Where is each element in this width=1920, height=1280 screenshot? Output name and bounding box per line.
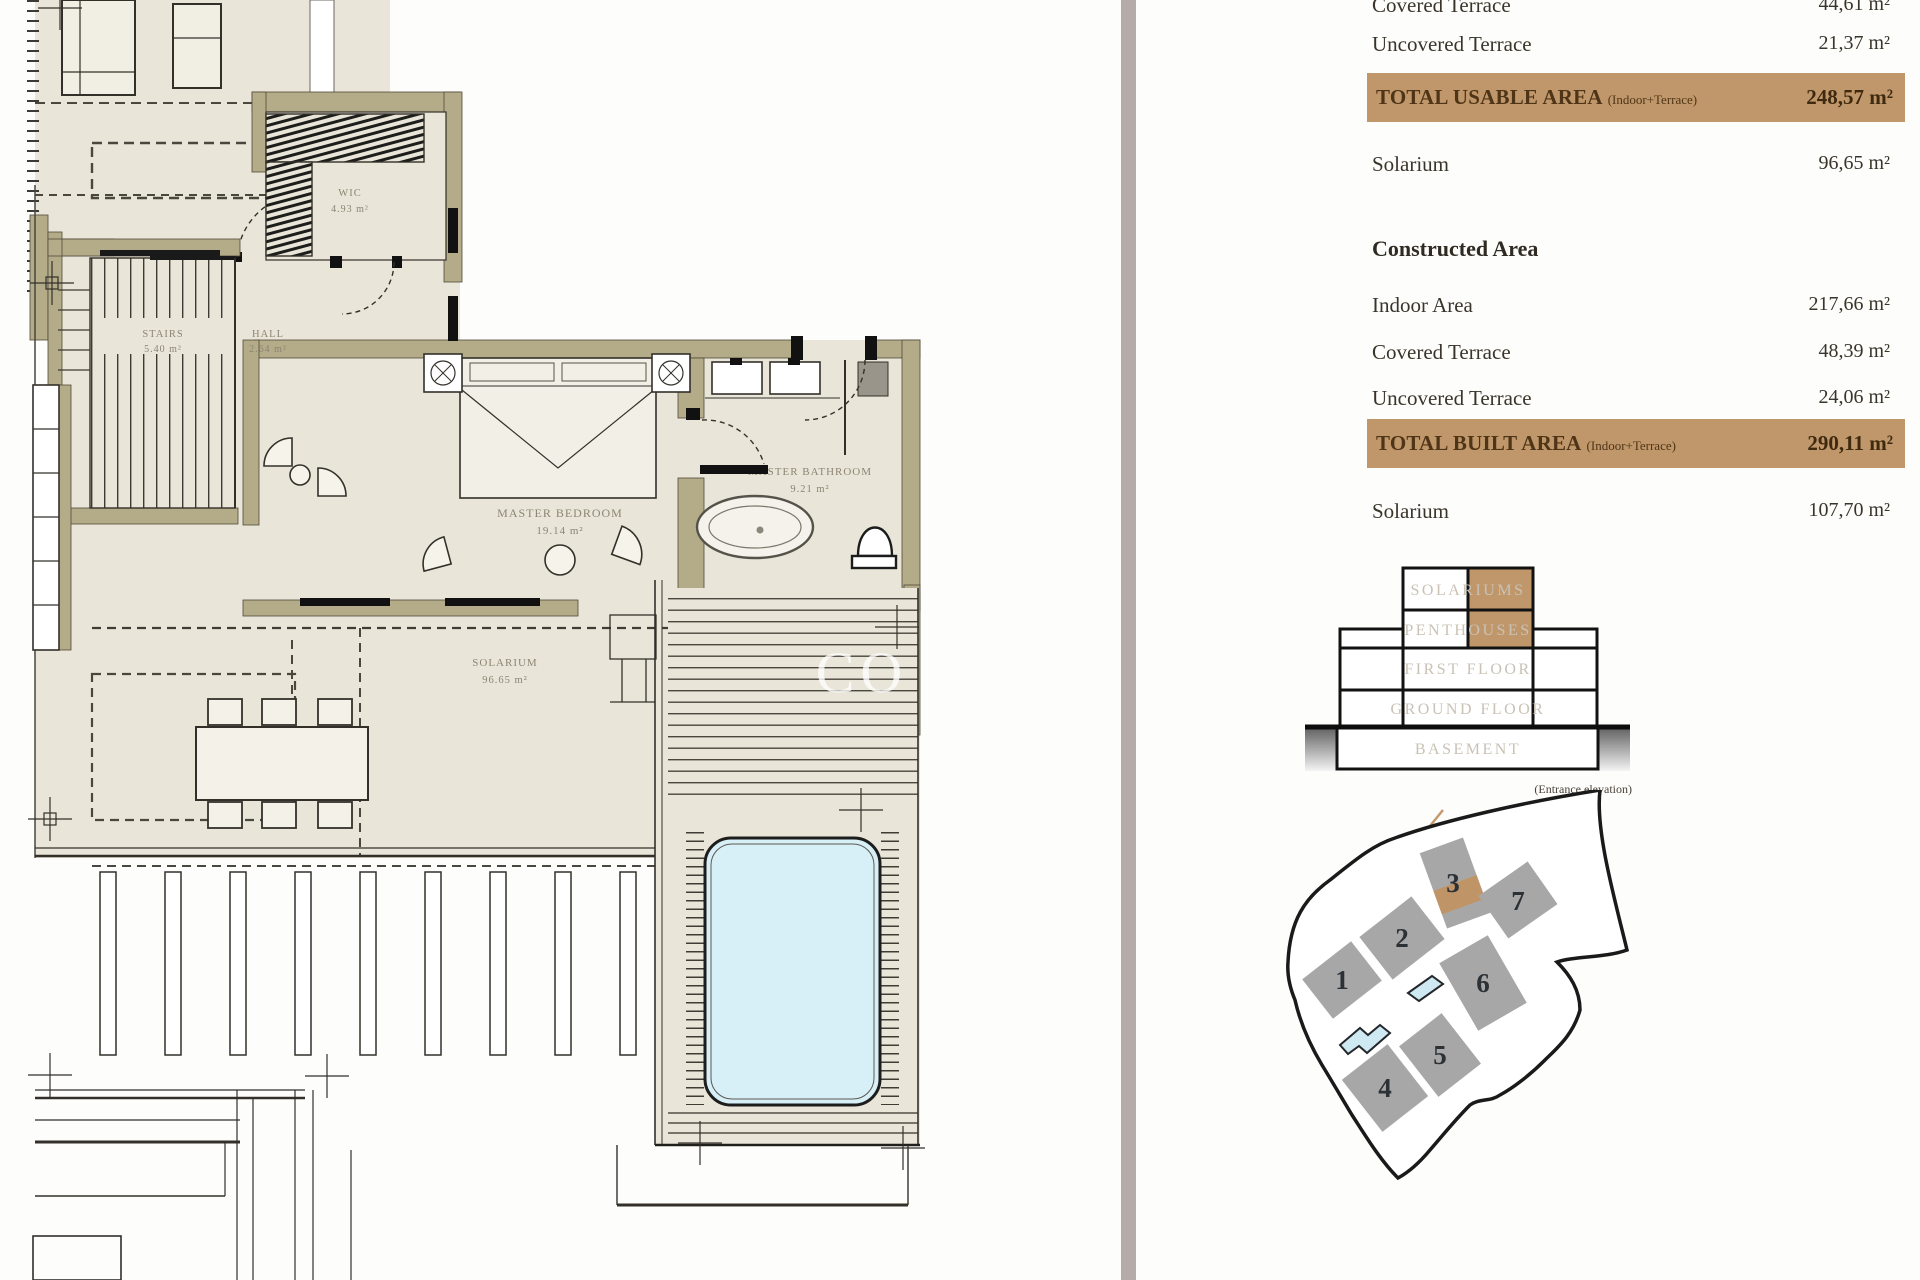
table-row: Solarium 107,70 m² — [1372, 499, 1890, 524]
pool-water — [705, 838, 880, 1105]
ground-left — [1305, 727, 1337, 771]
floor-label-penthouses: PENTHOUSES — [1404, 622, 1531, 639]
total-usable-area-bar: TOTAL USABLE AREA(Indoor+Terrace) 248,57… — [1367, 73, 1905, 122]
floor-label-ground-floor: GROUND FLOOR — [1391, 701, 1546, 718]
floor-label-solariums: SOLARIUMS — [1411, 582, 1526, 599]
constructed-area-heading: Constructed Area — [1372, 236, 1538, 262]
total-value: 290,11 m² — [1807, 431, 1893, 456]
planter-column — [33, 385, 59, 650]
bathtub — [697, 496, 813, 558]
site-building-1: 1 — [1335, 965, 1349, 995]
solarium-label: SOLARIUM — [472, 657, 537, 669]
total-built-area-bar: TOTAL BUILT AREA(Indoor+Terrace) 290,11 … — [1367, 419, 1905, 468]
stairs-area: 5.40 m² — [144, 344, 182, 355]
building-elevation-diagram: SOLARIUMS PENTHOUSES FIRST FLOOR GROUND … — [1300, 558, 1635, 798]
total-qualifier: (Indoor+Terrace) — [1608, 92, 1697, 107]
row-label: Solarium — [1372, 499, 1449, 524]
row-value: 48,39 m² — [1818, 340, 1890, 365]
bedroom-area: 19.14 m² — [536, 525, 583, 537]
vanity-sinks — [705, 358, 840, 398]
site-building-2: 2 — [1395, 923, 1409, 953]
table-row: Indoor Area 217,66 m² — [1372, 293, 1890, 318]
page-divider — [1121, 0, 1136, 1280]
site-building-7: 7 — [1511, 886, 1525, 916]
row-label: Covered Terrace — [1372, 340, 1511, 365]
area-summary-panel: Covered Terrace 44,61 m² Uncovered Terra… — [1145, 0, 1920, 1280]
floor-label-basement: BASEMENT — [1415, 741, 1521, 758]
bed — [460, 358, 656, 498]
hall-area: 2.64 m² — [249, 344, 287, 355]
nightstand-left — [424, 354, 462, 392]
wic-label: WIC — [338, 188, 361, 199]
row-value: 24,06 m² — [1818, 386, 1890, 411]
row-label: Indoor Area — [1372, 293, 1473, 318]
pergola-slats — [100, 872, 636, 1055]
nightstand-right — [652, 354, 690, 392]
ground-right — [1598, 727, 1630, 771]
total-value: 248,57 m² — [1806, 85, 1893, 110]
total-label: TOTAL USABLE AREA — [1376, 85, 1603, 109]
bathroom-area: 9.21 m² — [790, 484, 829, 495]
door-leaf — [700, 465, 768, 474]
table-row: Covered Terrace 48,39 m² — [1372, 340, 1890, 365]
site-map: 1 2 3 4 5 6 7 — [1285, 790, 1645, 1185]
site-building-5: 5 — [1433, 1040, 1447, 1070]
bedroom-label: MASTER BEDROOM — [497, 506, 623, 520]
floor-plan: STAIRS 5.40 m² HALL 2.64 m² WIC 4.93 m² — [0, 0, 1140, 1280]
floor-label-first-floor: FIRST FLOOR — [1404, 661, 1531, 678]
closet-hatch-left — [266, 162, 312, 256]
solarium-area: 96.65 m² — [482, 675, 528, 686]
table-row: Covered Terrace 44,61 m² — [1372, 0, 1890, 18]
row-value: 21,37 m² — [1818, 32, 1890, 57]
site-building-6: 6 — [1476, 968, 1490, 998]
floorplan-page: STAIRS 5.40 m² HALL 2.64 m² WIC 4.93 m² — [0, 0, 1920, 1280]
stairs-label: STAIRS — [142, 329, 183, 340]
row-value: 96,65 m² — [1818, 152, 1890, 177]
table-row: Uncovered Terrace 21,37 m² — [1372, 32, 1890, 57]
table-row: Uncovered Terrace 24,06 m² — [1372, 386, 1890, 411]
hall-label: HALL — [252, 329, 284, 340]
site-building-4: 4 — [1378, 1073, 1392, 1103]
row-label: Covered Terrace — [1372, 0, 1511, 18]
closet-hatch-top — [266, 114, 424, 162]
row-value: 44,61 m² — [1818, 0, 1890, 18]
row-label: Uncovered Terrace — [1372, 32, 1532, 57]
total-label: TOTAL BUILT AREA — [1376, 431, 1582, 455]
row-value: 107,70 m² — [1808, 499, 1890, 524]
row-value: 217,66 m² — [1808, 293, 1890, 318]
total-qualifier: (Indoor+Terrace) — [1587, 438, 1676, 453]
row-label: Solarium — [1372, 152, 1449, 177]
row-label: Uncovered Terrace — [1372, 386, 1532, 411]
wic-area: 4.93 m² — [331, 204, 369, 215]
site-building-3: 3 — [1446, 868, 1460, 898]
table-row: Solarium 96,65 m² — [1372, 152, 1890, 177]
watermark: CO — [816, 640, 909, 705]
